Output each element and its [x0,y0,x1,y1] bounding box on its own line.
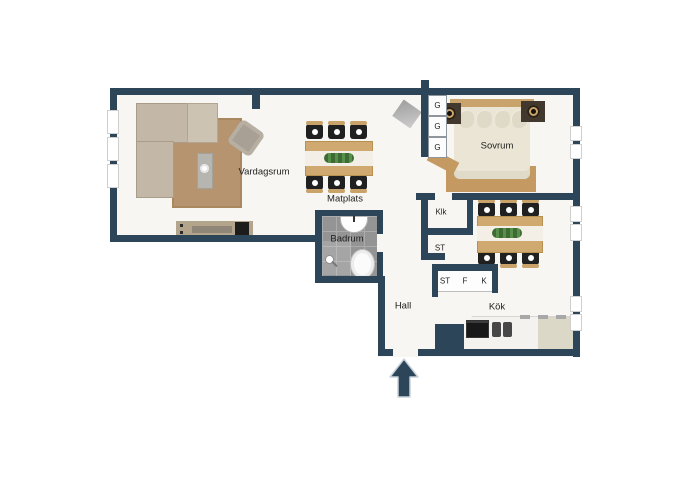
dining-chair [350,175,367,190]
canister [503,322,512,337]
wardrobe-label: G [434,101,440,110]
lamp-icon [527,105,540,118]
kitchen-chair [522,202,539,217]
room-label-st: ST [435,244,445,253]
wall-bath-bottom [315,276,385,283]
window [107,164,119,188]
wall-klk-bottom [421,228,473,235]
sofa-chaise [187,103,218,143]
plant-centerpiece-icon [492,228,522,238]
wall-bath-right-lower [377,252,383,283]
wardrobe-cell: G [428,137,447,158]
room-label-klk: Klk [435,208,446,217]
room-label-hall: Hall [395,301,411,312]
bench-knob [180,224,183,227]
closet-label-st: ST [440,277,450,286]
wall-closet-top [432,264,498,271]
room-label-badrum: Badrum [330,234,363,245]
kitchen-chair [478,202,495,217]
window [570,144,582,159]
wardrobe-label: G [434,143,440,152]
tv-bench-shelf [192,226,232,233]
dining-chair [328,124,345,139]
wardrobe-label: G [434,122,440,131]
wardrobe-cell: G [428,116,447,137]
faucet-mark [538,315,548,319]
faucet-mark [520,315,530,319]
dining-chair [328,175,345,190]
wall-bedroom-left [421,88,428,157]
wall-klk-left [421,193,428,260]
room-label-sovrum: Sovrum [481,141,514,152]
sink-faucet-icon [353,216,355,222]
wall-pier-top [421,80,429,88]
wall-hall-left [378,283,385,356]
dining-chair [350,124,367,139]
wall-bath-left [315,210,322,283]
window [570,206,582,222]
canister [492,322,501,337]
sofa-left-section [136,141,174,198]
room-label-matplats: Matplats [327,194,363,205]
plant-centerpiece-icon [324,153,354,163]
dining-chair [306,175,323,190]
window [107,137,119,161]
wall-closet-right [492,264,498,293]
wall-bath-right-upper [377,210,383,234]
kitchen-chair [500,202,517,217]
wardrobe-cell: G [428,95,447,116]
window [570,126,582,141]
wall-pier-living [252,95,260,109]
window [107,110,119,134]
window [570,296,582,312]
floor-plan: G G G ST F K Vardagsrum Matplats Badrum … [0,0,700,500]
stove [466,320,489,338]
faucet-mark [556,315,566,319]
bathtub [350,249,375,279]
closet-label-k: K [481,277,486,286]
wardrobe-column: G G G [428,95,447,158]
wall-st-step [421,253,445,260]
window [570,224,582,241]
pillow [476,110,492,128]
room-label-kok: Kök [489,302,505,313]
bench-knob [180,231,183,234]
wall-top [110,88,580,95]
wall-bath-top [315,210,383,216]
room-label-vardagsrum: Vardagsrum [238,167,289,178]
wall-living-bottom [110,235,322,242]
dining-chair [306,124,323,139]
closet-label-f: F [463,277,468,286]
pillow [494,110,510,128]
wall-entry-block [435,324,464,356]
flower-decor-icon [200,164,209,173]
window [570,314,582,331]
entrance-arrow-icon [384,356,424,400]
